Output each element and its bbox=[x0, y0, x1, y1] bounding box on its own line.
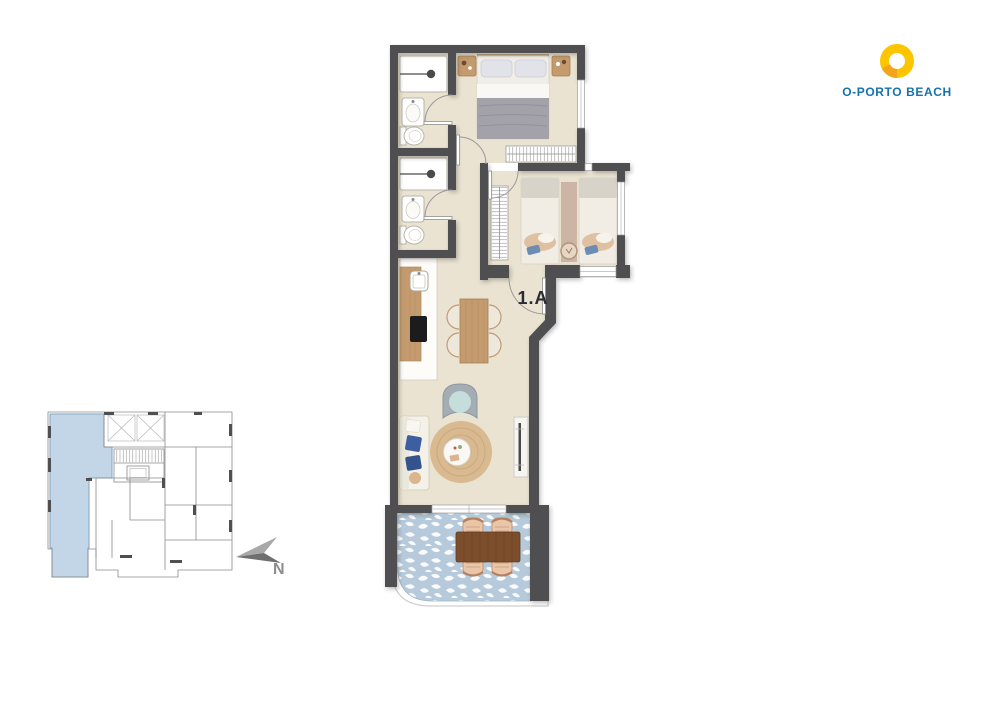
kitchen bbox=[400, 258, 437, 380]
toilet-icon bbox=[400, 226, 424, 244]
north-arrow-light bbox=[236, 537, 277, 557]
logo-sun-ring-shade bbox=[886, 67, 897, 74]
north-arrow: N bbox=[236, 537, 285, 578]
shower-head-icon bbox=[427, 70, 435, 78]
page: 1.A N bbox=[0, 0, 992, 701]
sliding-door-terrace bbox=[432, 505, 506, 513]
key-plan bbox=[48, 412, 232, 577]
window-bedroom2-south bbox=[580, 267, 616, 277]
double-bed bbox=[477, 54, 549, 139]
north-label: N bbox=[273, 561, 285, 578]
key-plan-interior bbox=[96, 412, 232, 570]
armchair bbox=[443, 384, 477, 418]
wardrobe-master bbox=[506, 146, 576, 162]
toilet-icon bbox=[400, 127, 424, 145]
clock-stool-icon bbox=[561, 243, 577, 259]
single-bed-left bbox=[521, 178, 559, 264]
sink-icon bbox=[402, 98, 424, 126]
floorplan-canvas: 1.A N bbox=[0, 0, 992, 701]
shower-head-icon bbox=[427, 170, 435, 178]
nightstand-right bbox=[552, 56, 570, 76]
nightstand-left bbox=[458, 56, 476, 76]
coffee-table bbox=[444, 439, 471, 466]
key-plan-highlight bbox=[50, 414, 112, 577]
window-master bbox=[578, 80, 585, 128]
window-bedroom2-east bbox=[618, 182, 625, 235]
outdoor-table bbox=[456, 532, 520, 562]
window-slit bbox=[585, 164, 592, 171]
sink-icon bbox=[402, 196, 424, 222]
logo-text: O-PORTO BEACH bbox=[842, 85, 952, 99]
dining-table bbox=[460, 299, 488, 363]
single-bed-right bbox=[579, 178, 617, 264]
tv-sideboard bbox=[514, 417, 528, 477]
unit-label: 1.A bbox=[517, 288, 548, 308]
kitchen-sink-icon bbox=[410, 271, 428, 291]
main-floor-plan: 1.A bbox=[385, 45, 630, 606]
logo: O-PORTO BEACH bbox=[842, 49, 952, 100]
sofa bbox=[400, 416, 429, 490]
cooktop-icon bbox=[410, 316, 427, 342]
terrace bbox=[391, 510, 548, 606]
